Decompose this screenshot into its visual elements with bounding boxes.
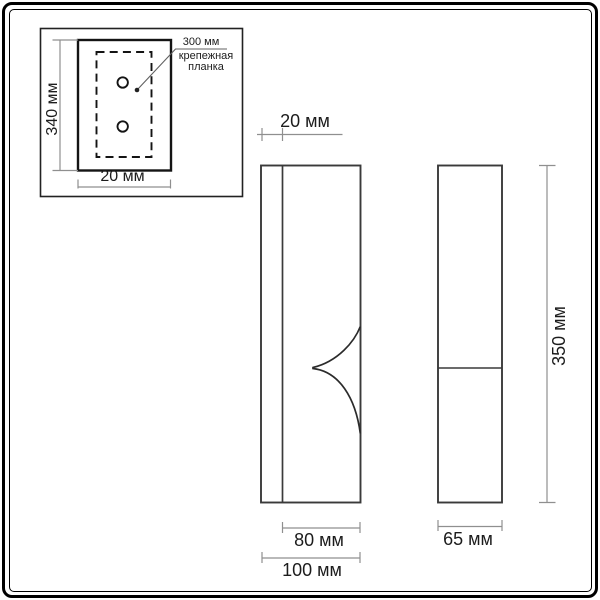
- backplate-thickness-label: 20 мм: [275, 111, 335, 131]
- annotation-caption-line2: планка: [167, 62, 245, 73]
- diagram-page: 300 мм крепежная планка 340 мм 20 мм 20 …: [0, 0, 600, 600]
- front-view-group: [257, 128, 361, 563]
- depth-label: 65 мм: [433, 529, 503, 549]
- annotation-value-label: 300 мм: [174, 36, 228, 48]
- plate-height-label: 340 мм: [44, 59, 62, 159]
- body-width-label: 80 мм: [284, 530, 354, 550]
- annotation-caption-label: крепежная планка: [167, 51, 245, 72]
- diagram-linework: [0, 0, 600, 600]
- annotation-leader-dot: [135, 88, 140, 93]
- mounting-plate-outline: [78, 40, 171, 171]
- side-view-group: [438, 166, 556, 532]
- annotation-caption-line1: крепежная: [167, 51, 245, 62]
- front-view-outline: [261, 166, 361, 503]
- side-view-outline: [438, 166, 502, 503]
- mounting-hole-bottom: [118, 121, 128, 131]
- overall-width-label: 100 мм: [272, 560, 352, 580]
- overall-height-label: 350 мм: [549, 286, 567, 386]
- mounting-hole-top: [118, 77, 128, 87]
- plate-width-label: 20 мм: [92, 168, 153, 186]
